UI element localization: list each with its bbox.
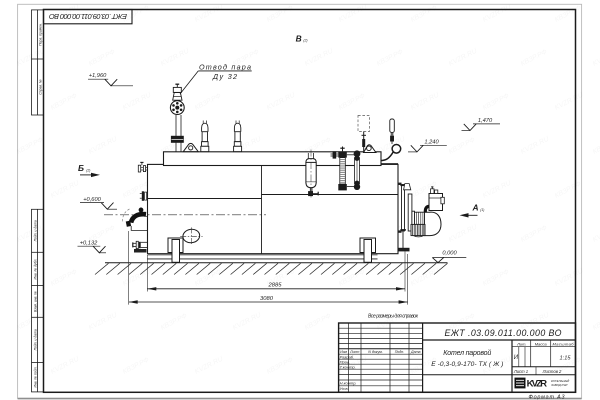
svg-text:Подп.: Подп. — [395, 350, 405, 354]
svg-text:Взам. инв. №: Взам. инв. № — [33, 291, 37, 312]
svg-text:Все размеры для справок: Все размеры для справок — [368, 314, 419, 320]
svg-text:Е -0,3-0,9-170- ТХ ( Ж ): Е -0,3-0,9-170- ТХ ( Ж ) — [431, 361, 503, 368]
svg-text:А: А — [471, 203, 478, 213]
svg-text:Масштаб: Масштаб — [553, 341, 575, 346]
svg-text:Формат А3: Формат А3 — [529, 395, 565, 400]
svg-text:Изм: Изм — [340, 350, 347, 354]
svg-text:+1,960: +1,960 — [89, 73, 107, 79]
svg-text:Справ. №: Справ. № — [38, 79, 42, 95]
svg-text:Т.контр.: Т.контр. — [340, 364, 356, 369]
svg-text:Инв. № дубл.: Инв. № дубл. — [33, 259, 37, 280]
svg-text:N докум.: N докум. — [368, 350, 383, 354]
svg-text:2885: 2885 — [268, 283, 283, 289]
svg-text:(1): (1) — [480, 208, 484, 212]
svg-text:(2): (2) — [303, 39, 307, 43]
svg-text:Подп. и дата: Подп. и дата — [33, 329, 37, 350]
svg-text:ЕЖТ .03.09.011.00.000 ВО: ЕЖТ .03.09.011.00.000 ВО — [445, 328, 562, 338]
svg-text:Ду 32: Ду 32 — [212, 72, 237, 81]
svg-text:1,470: 1,470 — [478, 118, 493, 124]
svg-text:Подп. и дата: Подп. и дата — [33, 220, 37, 241]
svg-text:Масса: Масса — [535, 341, 548, 346]
svg-text:+0,132: +0,132 — [80, 240, 98, 246]
svg-text:+0,600: +0,600 — [83, 197, 101, 203]
svg-text:0,000: 0,000 — [442, 251, 457, 257]
svg-text:Лист: Лист — [349, 350, 359, 354]
svg-text:1,240: 1,240 — [424, 140, 439, 146]
svg-text:Утв.: Утв. — [340, 386, 349, 391]
svg-text:Б: Б — [78, 163, 84, 173]
svg-text:Лит.: Лит. — [516, 341, 526, 346]
svg-text:ЗАВОД РЭР: ЗАВОД РЭР — [551, 383, 567, 387]
svg-text:3080: 3080 — [260, 296, 274, 302]
svg-text:Отвод пара: Отвод пара — [199, 62, 251, 71]
svg-text:Лист 1: Лист 1 — [513, 369, 528, 374]
svg-text:В: В — [296, 33, 302, 43]
svg-text:Н.контр.: Н.контр. — [340, 381, 357, 386]
svg-text:(2): (2) — [86, 169, 90, 173]
svg-text:1:15: 1:15 — [560, 356, 572, 362]
svg-text:Котел паровой: Котел паровой — [443, 349, 491, 357]
svg-text:ЕЖТ .03.09.011.00.000 ВО: ЕЖТ .03.09.011.00.000 ВО — [49, 12, 127, 21]
svg-text:KVZR: KVZR — [527, 379, 547, 390]
svg-text:Перв. примен.: Перв. примен. — [38, 23, 42, 46]
svg-text:Листов 2: Листов 2 — [542, 369, 562, 374]
svg-text:Инв. № подл.: Инв. № подл. — [33, 366, 37, 387]
svg-text:Дата: Дата — [410, 350, 420, 354]
svg-text:И: И — [514, 355, 519, 361]
